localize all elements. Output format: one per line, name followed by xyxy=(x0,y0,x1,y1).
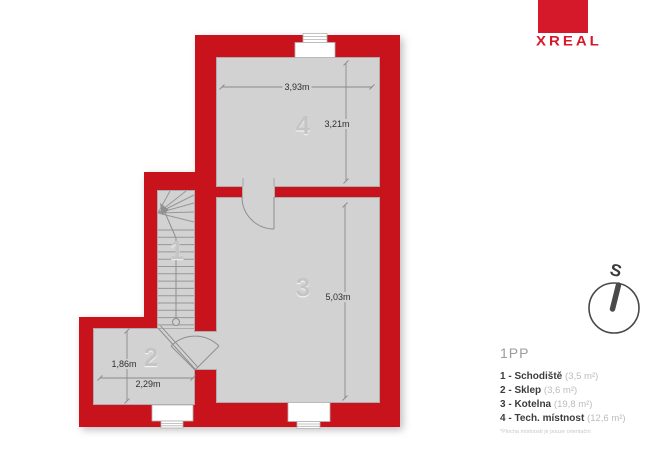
legend-item-2-area: (3,6 m²) xyxy=(544,385,577,396)
legend-items: 1 - Schodiště (3,5 m²) 2 - Sklep (3,6 m²… xyxy=(500,370,662,426)
legend-item-3-area: (19,8 m²) xyxy=(554,399,593,410)
legend-item-3: 3 - Kotelna (19,8 m²) xyxy=(500,398,662,412)
brand-logo-text: XREAL xyxy=(536,34,630,49)
compass: S xyxy=(585,256,647,340)
dim-room2-height: 1,86m xyxy=(109,359,138,369)
legend-footnote: *Plocha místností je pouze orientační xyxy=(500,429,662,435)
window-bottom-middle xyxy=(288,403,330,429)
legend-item-4: 4 - Tech. místnost (12,6 m²) xyxy=(500,412,662,426)
door-hall-swing xyxy=(171,336,219,370)
room-number-4: 4 xyxy=(290,111,316,139)
stair-walkline xyxy=(163,208,176,322)
legend-item-1: 1 - Schodiště (3,5 m²) xyxy=(500,370,662,384)
brand-logo-icon xyxy=(538,0,588,33)
door-top-swing-arc xyxy=(242,197,274,229)
legend: 1PP 1 - Schodiště (3,5 m²) 2 - Sklep (3,… xyxy=(500,345,662,435)
door-top-jambs xyxy=(243,178,274,186)
window-top xyxy=(295,34,335,58)
floor-plan: 1 2 3 4 3,93m 3,21m 5,03m 1,86m 2,29m xyxy=(0,0,470,468)
legend-item-1-area: (3,5 m²) xyxy=(565,371,598,382)
window-bottom-left xyxy=(152,405,193,428)
legend-item-4-name: 4 - Tech. místnost xyxy=(500,413,584,424)
room-number-3: 3 xyxy=(290,273,316,301)
legend-item-2-name: 2 - Sklep xyxy=(500,385,541,396)
room-number-1: 1 xyxy=(164,236,190,264)
legend-item-3-name: 3 - Kotelna xyxy=(500,399,551,410)
dim-room4-width: 3,93m xyxy=(282,82,311,92)
dim-room2-width: 2,29m xyxy=(133,379,162,389)
plan-linework xyxy=(0,0,470,468)
floor-label: 1PP xyxy=(500,345,662,361)
dim-room3-height: 5,03m xyxy=(323,292,352,302)
stair-start-marker xyxy=(173,319,180,326)
legend-item-1-name: 1 - Schodiště xyxy=(500,371,562,382)
room-number-2: 2 xyxy=(138,343,164,371)
dim-room4-height: 3,21m xyxy=(322,119,351,129)
legend-item-2: 2 - Sklep (3,6 m²) xyxy=(500,384,662,398)
compass-north-label: S xyxy=(608,260,624,281)
legend-item-4-area: (12,6 m²) xyxy=(587,413,626,424)
